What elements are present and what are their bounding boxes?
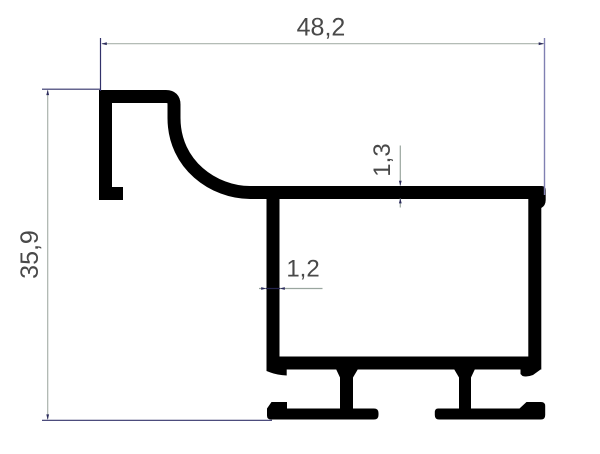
- svg-text:48,2: 48,2: [297, 14, 346, 42]
- svg-text:35,9: 35,9: [16, 230, 44, 279]
- svg-text:1,2: 1,2: [286, 256, 319, 283]
- svg-text:1,3: 1,3: [369, 143, 396, 176]
